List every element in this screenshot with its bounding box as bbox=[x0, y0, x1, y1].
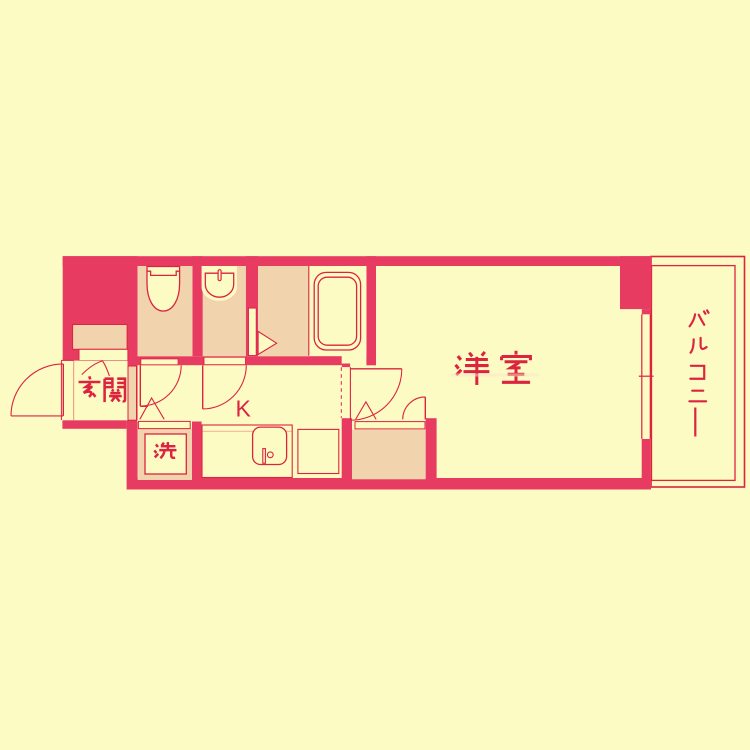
svg-text:K: K bbox=[236, 396, 252, 422]
